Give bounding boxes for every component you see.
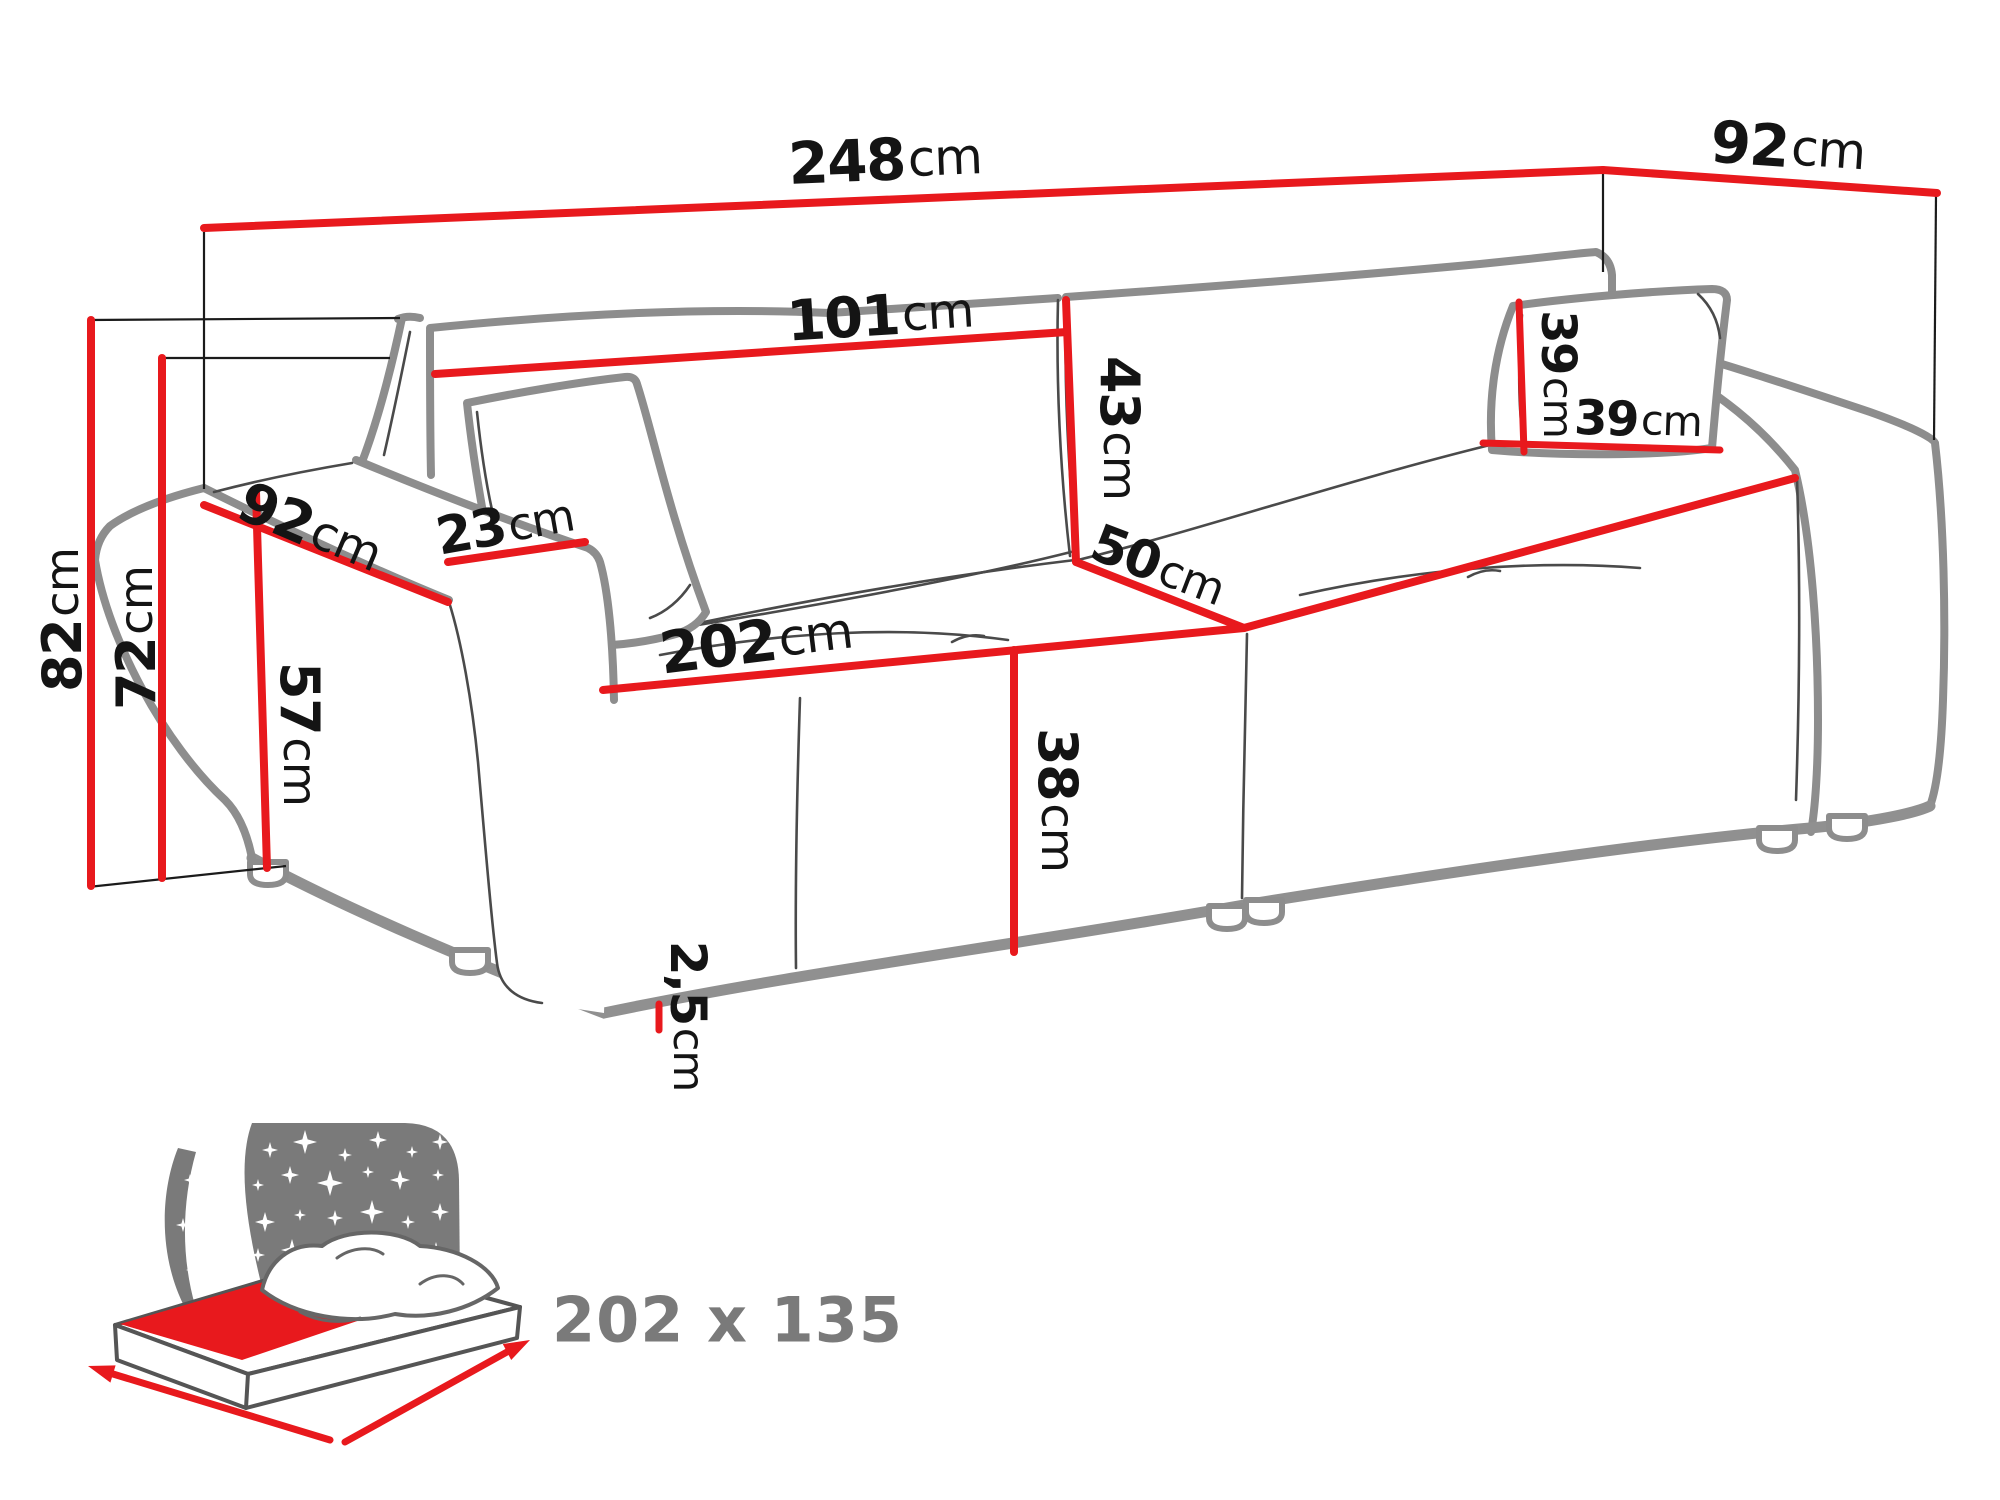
sofa-back-left-wing — [362, 317, 431, 478]
arrow-head-left-icon — [88, 1365, 116, 1382]
arrow-head-right-icon — [503, 1340, 530, 1360]
line-armrest-height — [256, 492, 267, 868]
fold-out-bed — [88, 1233, 530, 1443]
dim-seat-height-label: 38cm — [1027, 728, 1090, 872]
dim-leg-height-label: 2,5cm — [659, 941, 717, 1092]
line-pillow-height — [1519, 302, 1524, 452]
dim-total-depth-label: 92cm — [1708, 108, 1867, 187]
bed-size-label: 202 x 135 — [552, 1284, 903, 1357]
dim-armrest-height-label: 57cm — [269, 662, 332, 806]
sleeping-function-icon: 202 x 135 — [88, 1123, 903, 1442]
dim-total-width-label: 248cm — [787, 122, 983, 198]
dim-backrest-height-label: 72cm — [105, 566, 168, 710]
dim-back-height-label: 43cm — [1089, 356, 1152, 500]
duvet-and-pillows — [262, 1233, 498, 1322]
dim-total-height-label: 82cm — [31, 548, 94, 692]
sofa-dimension-diagram: 248cm 92cm 101cm 43cm 50cm 202cm 38cm 2,… — [0, 0, 2000, 1500]
sofa-drawing — [95, 252, 1944, 1013]
